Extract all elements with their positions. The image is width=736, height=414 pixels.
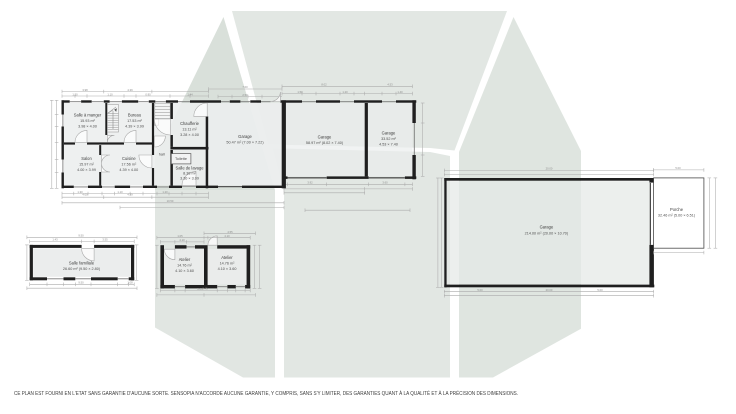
svg-text:Salle à manger: Salle à manger <box>74 113 102 118</box>
svg-text:CE PLAN EST FOURNI EN L'ETAT S: CE PLAN EST FOURNI EN L'ETAT SANS GARANT… <box>14 390 518 397</box>
svg-text:Cuisine: Cuisine <box>122 156 136 161</box>
svg-text:5.00: 5.00 <box>477 288 483 292</box>
svg-text:1.43: 1.43 <box>52 238 58 242</box>
svg-text:14.76 m²: 14.76 m² <box>177 264 193 268</box>
svg-text:5.00: 5.00 <box>597 288 603 292</box>
svg-text:4.39 × 3.99: 4.39 × 3.99 <box>125 125 144 129</box>
svg-text:15.97 m²: 15.97 m² <box>79 163 95 167</box>
svg-text:1.08: 1.08 <box>127 281 133 285</box>
svg-text:1.20: 1.20 <box>342 90 348 94</box>
svg-text:17.56 m²: 17.56 m² <box>121 163 137 167</box>
svg-text:26.60 m² (9.50 × 2.80): 26.60 m² (9.50 × 2.80) <box>63 267 101 271</box>
svg-text:Bureau: Bureau <box>128 113 141 118</box>
svg-text:Toilette: Toilette <box>175 157 187 161</box>
svg-text:1.05: 1.05 <box>177 234 183 238</box>
svg-text:13.11 m²: 13.11 m² <box>182 128 197 132</box>
svg-text:15.93 m²: 15.93 m² <box>80 119 96 123</box>
svg-text:1.20: 1.20 <box>72 92 78 96</box>
svg-text:20.00: 20.00 <box>546 288 553 292</box>
svg-text:Salon: Salon <box>81 156 92 161</box>
svg-text:Garage: Garage <box>540 225 554 230</box>
svg-text:Salle familiale: Salle familiale <box>69 261 95 266</box>
svg-text:7.00: 7.00 <box>242 85 248 89</box>
svg-text:2.50: 2.50 <box>242 93 248 97</box>
svg-text:1.10: 1.10 <box>117 190 123 194</box>
svg-text:3.55: 3.55 <box>102 238 108 242</box>
svg-text:Chaufferie: Chaufferie <box>180 121 200 126</box>
svg-text:33.52 m²: 33.52 m² <box>381 137 397 141</box>
svg-text:4.00 × 3.99: 4.00 × 3.99 <box>77 168 96 172</box>
svg-text:9.50: 9.50 <box>78 234 84 238</box>
svg-text:17.53 m²: 17.53 m² <box>127 119 143 123</box>
svg-text:3.28 × 4.00: 3.28 × 4.00 <box>180 133 199 137</box>
svg-text:8.02: 8.02 <box>321 83 327 87</box>
svg-text:4.10: 4.10 <box>224 234 230 238</box>
svg-text:5.00: 5.00 <box>675 166 681 170</box>
svg-text:4.39: 4.39 <box>127 88 133 92</box>
svg-text:3.92: 3.92 <box>307 181 313 185</box>
svg-text:20.00: 20.00 <box>546 167 553 171</box>
svg-text:50.47 m² (7.00 × 7.22): 50.47 m² (7.00 × 7.22) <box>226 140 264 144</box>
svg-text:0.90: 0.90 <box>145 92 151 96</box>
svg-text:4.10: 4.10 <box>179 238 185 242</box>
svg-text:1.10: 1.10 <box>107 92 113 96</box>
svg-text:3.98: 3.98 <box>82 88 88 92</box>
svg-text:4.10 × 3.60: 4.10 × 3.60 <box>175 269 194 273</box>
svg-text:Porche: Porche <box>670 207 684 212</box>
svg-text:4.55: 4.55 <box>227 230 233 234</box>
svg-text:4.00: 4.00 <box>82 192 88 196</box>
svg-text:Salle de lavage: Salle de lavage <box>176 166 205 171</box>
svg-text:3.98 × 4.00: 3.98 × 4.00 <box>78 125 97 129</box>
svg-text:Garage: Garage <box>238 134 252 139</box>
svg-text:10.50: 10.50 <box>167 199 174 203</box>
svg-text:9.50: 9.50 <box>78 281 84 285</box>
svg-text:4.39 × 4.00: 4.39 × 4.00 <box>119 168 138 172</box>
svg-text:214.00 m² (20.00 × 10.70): 214.00 m² (20.00 × 10.70) <box>525 231 569 235</box>
svg-text:3.60: 3.60 <box>382 181 388 185</box>
svg-text:32.46 m² (5.00 × 6.51): 32.46 m² (5.00 × 6.51) <box>658 214 696 218</box>
svg-text:1.40: 1.40 <box>397 90 403 94</box>
svg-text:8.45: 8.45 <box>202 287 208 291</box>
svg-text:3.30 × 3.09: 3.30 × 3.09 <box>180 177 199 181</box>
svg-text:Atelier: Atelier <box>179 257 191 262</box>
svg-text:Garage: Garage <box>382 131 396 136</box>
svg-text:4.53 × 7.40: 4.53 × 7.40 <box>379 143 398 147</box>
svg-text:Atelier: Atelier <box>221 255 233 260</box>
svg-text:1.20: 1.20 <box>162 190 168 194</box>
svg-text:hall: hall <box>159 153 165 157</box>
svg-text:1.44: 1.44 <box>187 92 193 96</box>
svg-text:4.39: 4.39 <box>127 192 133 196</box>
svg-text:Garage: Garage <box>318 135 332 140</box>
svg-text:4.53: 4.53 <box>387 83 393 87</box>
svg-text:8.38 m²: 8.38 m² <box>183 172 196 176</box>
svg-text:58.97 m² (8.02 × 7.40): 58.97 m² (8.02 × 7.40) <box>306 141 344 145</box>
svg-text:1.50: 1.50 <box>297 90 303 94</box>
svg-text:4.10 × 3.60: 4.10 × 3.60 <box>218 267 237 271</box>
svg-text:14.76 m²: 14.76 m² <box>220 262 236 266</box>
